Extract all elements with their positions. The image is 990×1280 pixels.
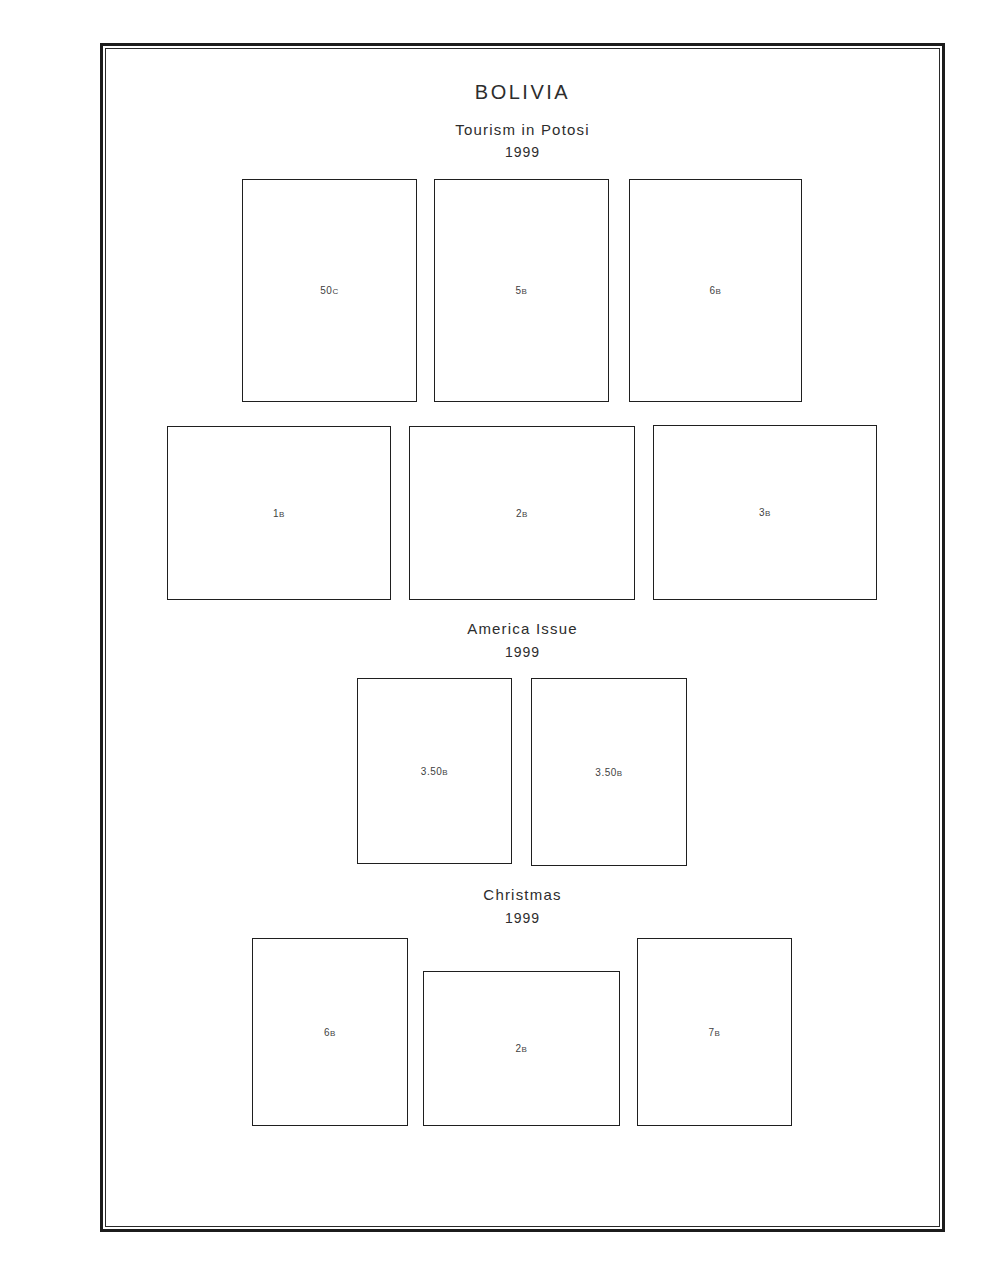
denomination-unit: B <box>522 1045 528 1054</box>
page-title: BOLIVIA <box>103 79 942 105</box>
stamp-denomination: 6B <box>324 1027 336 1038</box>
stamp-denomination: 6B <box>710 285 722 296</box>
denomination-value: 50 <box>320 285 332 296</box>
denomination-unit: B <box>442 768 448 777</box>
section-year-tourism: 1999 <box>103 142 942 162</box>
stamp-denomination: 50C <box>320 285 338 296</box>
denomination-unit: B <box>617 769 623 778</box>
stamp-box-350b-left: 3.50B <box>357 678 512 864</box>
section-heading-america: America Issue <box>103 619 942 639</box>
denomination-unit: B <box>279 510 285 519</box>
denomination-unit: B <box>522 510 528 519</box>
denomination-unit: B <box>522 287 528 296</box>
stamp-box-2b-tourism: 2B <box>409 426 635 600</box>
stamp-denomination: 1B <box>273 508 285 519</box>
stamp-box-350b-right: 3.50B <box>531 678 687 866</box>
stamp-denomination: 5B <box>516 285 528 296</box>
stamp-denomination: 3.50B <box>421 766 448 777</box>
stamp-box-2b-christmas: 2B <box>423 971 620 1126</box>
denomination-unit: B <box>716 287 722 296</box>
stamp-denomination: 3.50B <box>595 767 622 778</box>
stamp-box-50c: 50C <box>242 179 417 402</box>
denomination-unit: B <box>765 509 771 518</box>
album-page-canvas: BOLIVIA Tourism in Potosi 1999 50C 5B 6B… <box>0 0 990 1280</box>
stamp-denomination: 3B <box>759 507 771 518</box>
denomination-value: 3.50 <box>595 767 616 778</box>
stamp-denomination: 2B <box>516 508 528 519</box>
stamp-box-6b-christmas: 6B <box>252 938 408 1126</box>
denomination-unit: B <box>330 1029 336 1038</box>
stamp-box-7b: 7B <box>637 938 792 1126</box>
stamp-box-5b: 5B <box>434 179 609 402</box>
album-page: BOLIVIA Tourism in Potosi 1999 50C 5B 6B… <box>100 43 945 1232</box>
section-heading-christmas: Christmas <box>103 885 942 905</box>
stamp-denomination: 2B <box>516 1043 528 1054</box>
section-year-christmas: 1999 <box>103 908 942 928</box>
stamp-denomination: 7B <box>709 1027 721 1038</box>
denomination-unit: C <box>332 287 338 296</box>
stamp-box-1b: 1B <box>167 426 391 600</box>
stamp-box-6b-tourism: 6B <box>629 179 802 402</box>
denomination-unit: B <box>715 1029 721 1038</box>
stamp-box-3b: 3B <box>653 425 877 600</box>
section-year-america: 1999 <box>103 642 942 662</box>
section-heading-tourism: Tourism in Potosi <box>103 120 942 140</box>
denomination-value: 3.50 <box>421 766 442 777</box>
